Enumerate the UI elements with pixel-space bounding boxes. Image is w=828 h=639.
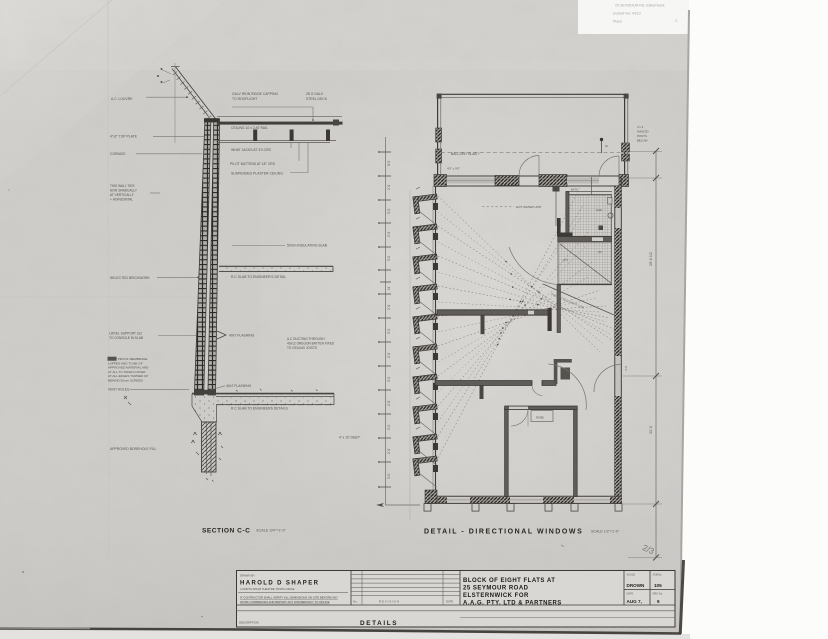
svg-text:3'-0: 3'-0 [387,329,391,334]
svg-text:Docket No; 4/213: Docket No; 4/213 [613,12,641,16]
svg-text:4 NORTH ROAD THEATRE: 4 NORTH ROAD THEATRE TOWN LODGE [240,587,295,591]
svg-text:AT VERTICALLY: AT VERTICALLY [110,193,135,197]
svg-text:3'-0: 3'-0 [387,256,391,261]
svg-text:THIS WALL TIES: THIS WALL TIES [110,184,135,188]
svg-text:+ HORIZONTAL: + HORIZONTAL [110,198,133,202]
svg-text:DRAWN BY: DRAWN BY [240,574,255,578]
svg-text:9c: 9c [605,144,609,148]
svg-text:CEILING 10 x 2 AT RAIL: CEILING 10 x 2 AT RAIL [231,126,268,130]
svg-text:4 x 3: 4 x 3 [637,125,644,129]
svg-text:4"x2" TOP PLATE: 4"x2" TOP PLATE [110,135,138,139]
svg-text:SCALE: SCALE [627,573,636,577]
svg-text:105: 105 [654,583,662,588]
svg-text:VENT HOLES: VENT HOLES [108,388,130,392]
svg-text:BALCONY SLAB ?: BALCONY SLAB ? [451,152,480,156]
svg-text:2'-6: 2'-6 [387,353,391,358]
svg-text:WHAT JACKS AT 3'0 CRS: WHAT JACKS AT 3'0 CRS [231,148,272,152]
svg-text:R.C SLAB TO ENGINEER'S DETAIL: R.C SLAB TO ENGINEER'S DETAIL [231,275,286,279]
svg-text:ROBE: ROBE [536,416,544,420]
svg-text:NON GRADUALLY: NON GRADUALLY [110,189,138,193]
svg-text:SCALE 1/2"=1'-0": SCALE 1/2"=1'-0" [591,530,620,534]
svg-text:TO CEILING JOISTS: TO CEILING JOISTS [287,346,317,350]
svg-text:TO CONSOLE IN SLAB: TO CONSOLE IN SLAB [109,336,143,340]
svg-text:LINTEL SUPPORT 2x2: LINTEL SUPPORT 2x2 [109,332,142,336]
svg-text:DROWN: DROWN [627,583,646,588]
svg-text:29'-6 1/2: 29'-6 1/2 [649,252,653,266]
svg-text:A.C. LOUVRE: A.C. LOUVRE [111,97,133,101]
svg-text:3'-0: 3'-0 [387,474,391,479]
svg-text:REVISION: REVISION [379,600,400,604]
svg-text:Plans: Plans [613,20,622,24]
svg-text:2'-6: 2'-6 [387,232,391,237]
svg-text:TO ROOFLIGHT: TO ROOFLIGHT [232,97,257,101]
svg-text:11: 11 [387,286,391,290]
svg-text:BEHIND 50mm SCREED: BEHIND 50mm SCREED [108,379,144,383]
svg-text:DRG No: DRG No [653,592,663,596]
svg-text:2'-6: 2'-6 [387,185,391,190]
svg-text:2'-6: 2'-6 [387,449,391,454]
svg-text:DESCRIPTION: DESCRIPTION [239,621,259,625]
svg-text:40x7 FLASHING: 40x7 FLASHING [229,334,255,338]
svg-text:JOB No: JOB No [653,573,663,577]
svg-text:LDY: LDY [563,258,568,262]
svg-text:31'-0: 31'-0 [649,426,653,434]
svg-text:9: 9 [657,599,660,604]
svg-text:SECTION C-C: SECTION C-C [202,528,250,535]
svg-text:25 SEYMOUR RD, Elsternwick: 25 SEYMOUR RD, Elsternwick [615,4,665,8]
svg-text:SCALE 3/4"=1'-0": SCALE 3/4"=1'-0" [256,529,287,533]
svg-text:A.A.G. PTY. LTD & PARTNERS: A.A.G. PTY. LTD & PARTNERS [463,601,562,607]
svg-text:GALV IRON RIDGE CAPPING: GALV IRON RIDGE CAPPING [232,92,278,96]
svg-text:BELOW: BELOW [637,139,648,143]
svg-text:R.C SLAB TO ENGINEERS DETAIL: R.C SLAB TO ENGINEERS DETAILS [231,407,288,411]
svg-text:28 G GALV: 28 G GALV [306,92,324,96]
svg-text:HAROLD D SHAPER: HAROLD D SHAPER [240,581,319,587]
svg-text:SELECTED BRICKWORK: SELECTED BRICKWORK [110,276,150,280]
svg-text:BATH: BATH [571,188,578,192]
svg-text:25 SEYMOUR ROAD: 25 SEYMOUR ROAD [463,586,529,592]
svg-text:BLOCK OF EIGHT FLATS AT: BLOCK OF EIGHT FLATS AT [463,578,555,584]
svg-text:4'-9: 4'-9 [624,366,628,371]
svg-text:2'-6: 2'-6 [387,305,391,310]
svg-text:40x12 OREGON BATTEN FIXED: 40x12 OREGON BATTEN FIXED [287,342,335,346]
svg-text:ELSTERNWICK FOR: ELSTERNWICK FOR [463,593,529,599]
svg-text:AUG 7,: AUG 7, [627,599,642,604]
svg-text:40x7 FLASHING: 40x7 FLASHING [226,384,252,388]
svg-text:50mm INSULATING SLAB: 50mm INSULATING SLAB [287,244,328,248]
svg-text:SHR: SHR [596,208,602,212]
svg-text:POSTS: POSTS [637,134,647,138]
svg-text:DATE: DATE [446,600,453,604]
svg-text:SUSPENDED PLASTER CEILING: SUSPENDED PLASTER CEILING [231,172,283,176]
svg-text:DETAILS: DETAILS [360,620,398,627]
svg-text:WC: WC [598,250,603,254]
svg-text:3'-0: 3'-0 [387,209,391,214]
svg-text:DETAIL - DIRECTIONAL WINDOWS: DETAIL - DIRECTIONAL WINDOWS [424,529,583,536]
svg-text:4'0" x 9'0": 4'0" x 9'0" [447,167,460,171]
svg-text:HWOOD: HWOOD [637,130,648,134]
svg-text:3'-0: 3'-0 [387,377,391,382]
svg-text:A.C DUCTING THROUGH: A.C DUCTING THROUGH [287,337,325,341]
svg-text:HOT WATER UNIT: HOT WATER UNIT [516,205,542,209]
svg-text:PILOT BATTENS AT 18" CRS: PILOT BATTENS AT 18" CRS [230,162,276,166]
svg-text:CORNICE: CORNICE [110,152,126,156]
svg-text:3'-0: 3'-0 [387,425,391,430]
svg-text:No.: No. [353,600,358,604]
svg-text:APPROVED BOREHOLE FILL: APPROVED BOREHOLE FILL [110,447,156,451]
svg-text:DATE: DATE [627,592,634,596]
svg-text:STEEL DECK: STEEL DECK [306,97,328,101]
svg-text:WORK COMMENCES AND REPORT ANY: WORK COMMENCES AND REPORT ANY DISCREPANC… [240,600,330,604]
svg-text:4' x 10' DEEP: 4' x 10' DEEP [339,436,360,440]
svg-text:8'-0: 8'-0 [387,161,391,166]
svg-text:2'-6: 2'-6 [387,401,391,406]
